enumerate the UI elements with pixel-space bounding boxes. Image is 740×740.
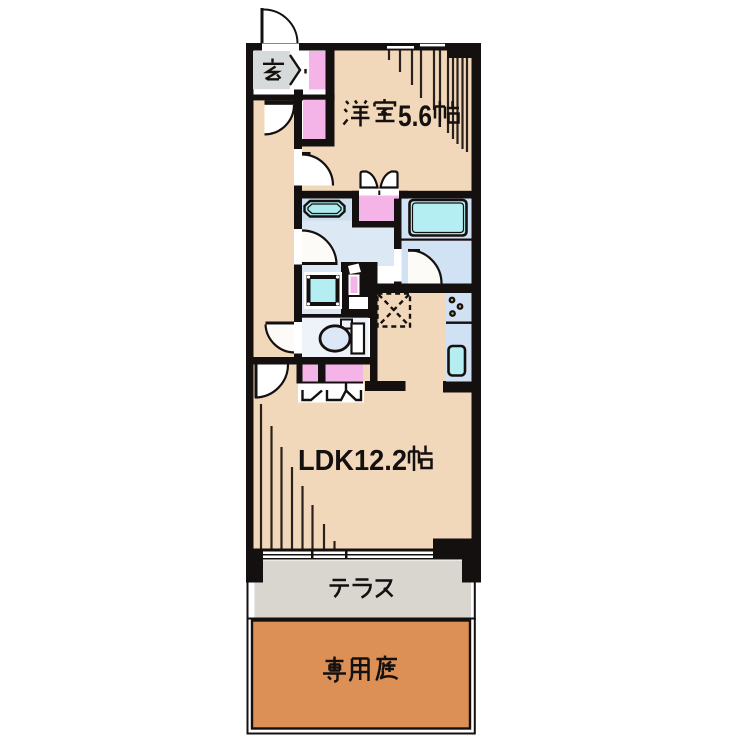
svg-text:LDK12.2: LDK12.2 (298, 445, 407, 477)
svg-text:5.6: 5.6 (398, 100, 432, 133)
